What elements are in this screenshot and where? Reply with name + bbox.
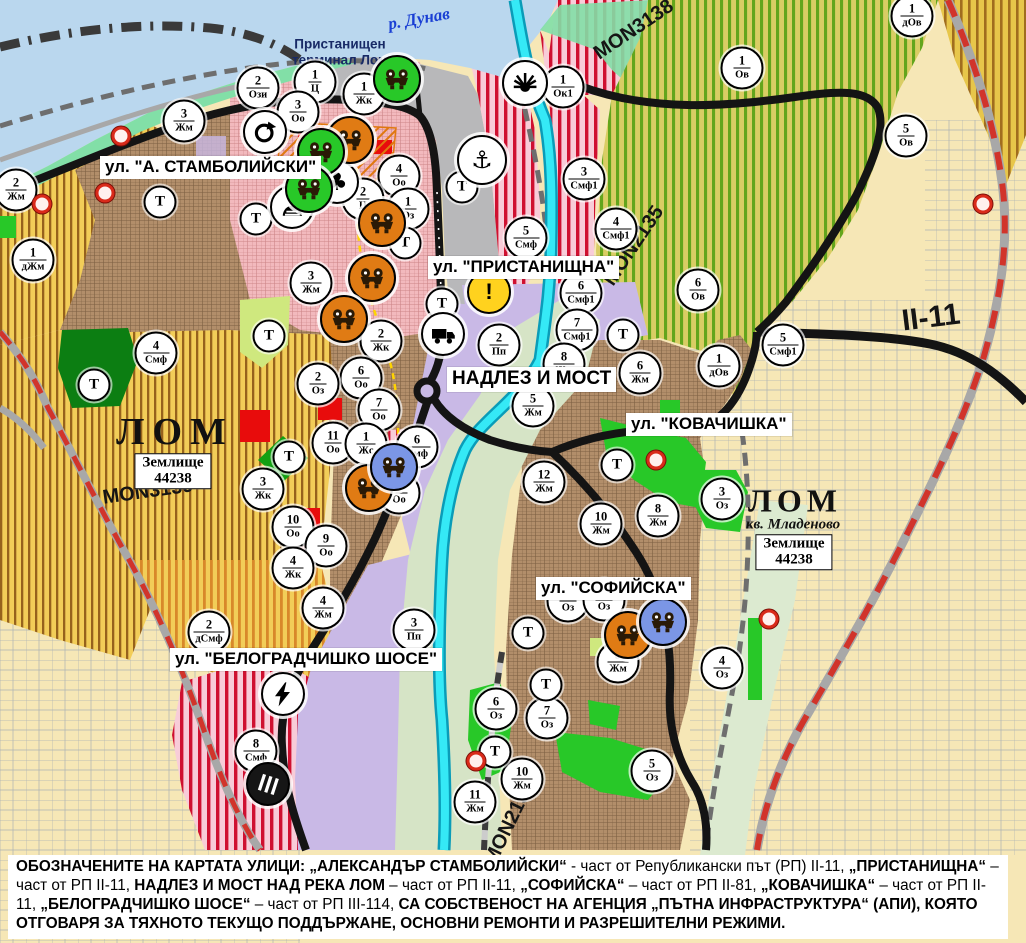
caption-segment: „СОФИЙСКА“	[520, 877, 624, 894]
map-caption: ОБОЗНАЧЕНИТЕ НА КАРТАТА УЛИЦИ: „АЛЕКСАНД…	[8, 855, 1008, 939]
caption-segment: – част от РП III-114,	[250, 896, 398, 913]
caption-segment: „ПРИСТАНИЩНА“	[849, 858, 986, 875]
caption-segment: - част от Републикански път (РП) II-11,	[567, 858, 849, 875]
caption-text: ОБОЗНАЧЕНИТЕ НА КАРТАТА УЛИЦИ: „АЛЕКСАНД…	[16, 858, 1000, 934]
caption-segment: – част от РП II-11,	[385, 877, 520, 894]
zoning-map: р. ДунавПристанищен терминал ЛомЛОМЛОМкв…	[0, 0, 1026, 943]
caption-segment: – част от РП II-81,	[625, 877, 761, 894]
map-base-layers	[0, 0, 1026, 943]
caption-segment: „БЕЛОГРАДЧИШКО ШОСЕ“	[40, 896, 250, 913]
caption-segment: „КОВАЧИШКА“	[761, 877, 875, 894]
caption-segment: ОБОЗНАЧЕНИТЕ НА КАРТАТА УЛИЦИ: „АЛЕКСАНД…	[16, 858, 567, 875]
zone-port-hatch	[278, 122, 396, 200]
caption-segment: НАДЛЕЗ И МОСТ НАД РЕКА ЛОМ	[134, 877, 385, 894]
